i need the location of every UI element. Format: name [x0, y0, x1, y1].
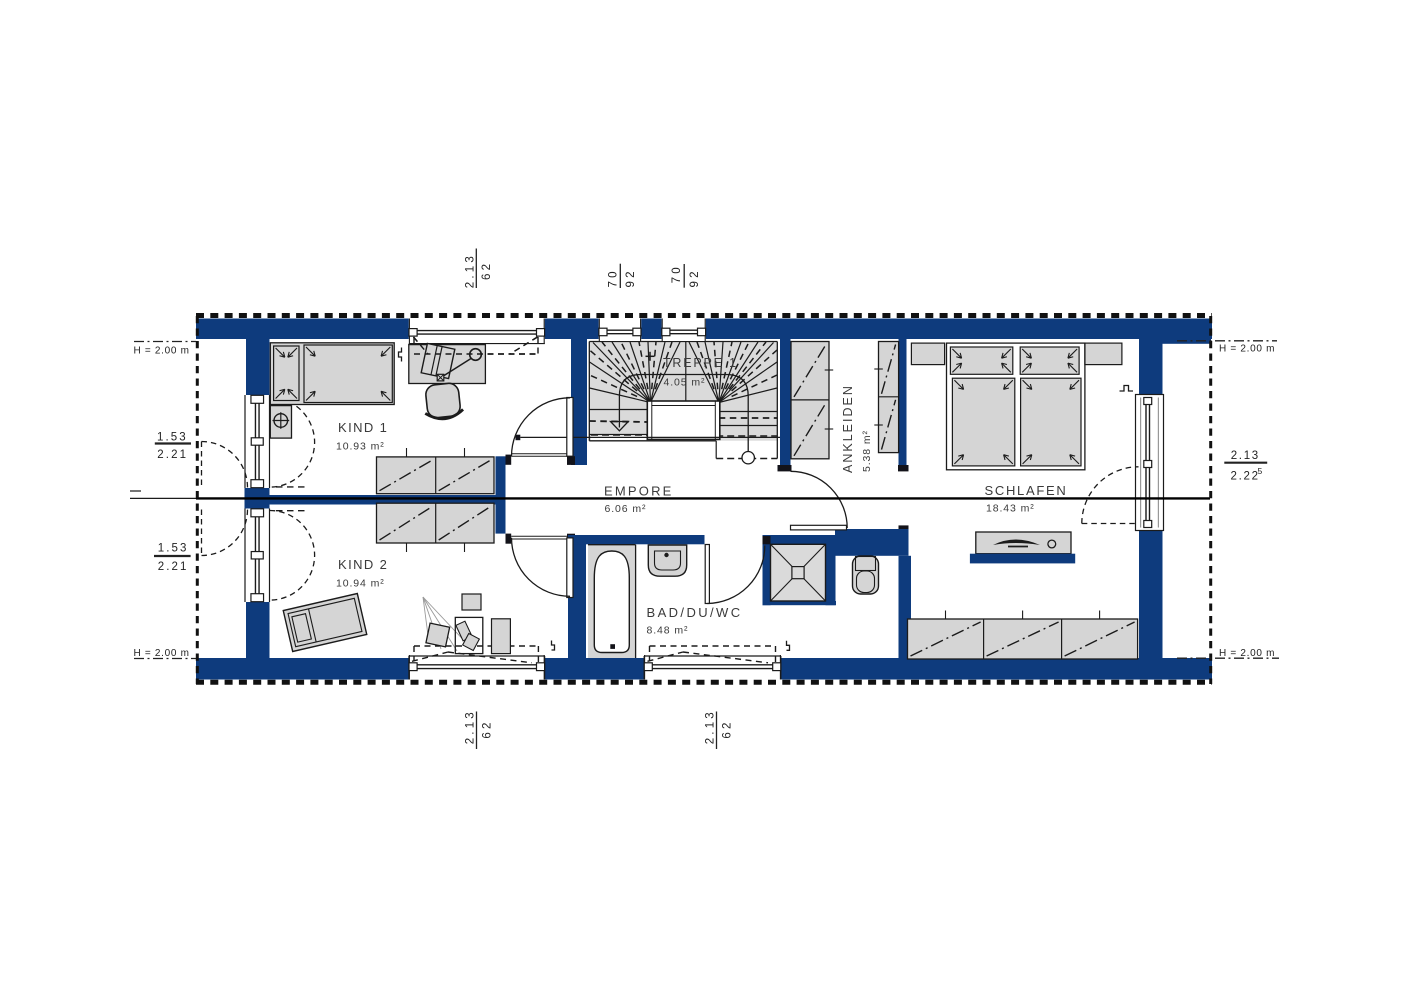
- svg-text:TREPPE 1: TREPPE 1: [663, 356, 738, 370]
- svg-text:KIND 1: KIND 1: [338, 420, 388, 435]
- svg-text:18.43 m²: 18.43 m²: [986, 503, 1035, 515]
- svg-text:EMPORE: EMPORE: [604, 484, 674, 499]
- svg-text:KIND 2: KIND 2: [338, 557, 388, 572]
- svg-text:2.13: 2.13: [465, 253, 477, 288]
- svg-text:62: 62: [481, 719, 493, 738]
- svg-text:1.53: 1.53: [158, 543, 189, 555]
- svg-text:1.53: 1.53: [157, 431, 188, 443]
- svg-text:62: 62: [481, 261, 493, 280]
- svg-text:8.48 m²: 8.48 m²: [647, 625, 689, 637]
- svg-text:4.05 m²: 4.05 m²: [664, 377, 706, 389]
- svg-text:2.13: 2.13: [1231, 450, 1260, 462]
- svg-text:H = 2.00 m: H = 2.00 m: [1219, 648, 1275, 659]
- svg-text:BAD/DU/WC: BAD/DU/WC: [647, 605, 743, 620]
- svg-text:H = 2.00 m: H = 2.00 m: [1219, 343, 1275, 354]
- svg-text:5.38 m²: 5.38 m²: [861, 430, 873, 472]
- svg-text:92: 92: [625, 268, 637, 287]
- svg-text:ANKLEIDEN: ANKLEIDEN: [841, 384, 855, 473]
- svg-text:70: 70: [671, 264, 683, 283]
- svg-text:2.21: 2.21: [158, 561, 189, 573]
- svg-text:2.13: 2.13: [465, 709, 477, 744]
- svg-text:2.22: 2.22: [1231, 470, 1260, 482]
- svg-text:2.21: 2.21: [157, 449, 188, 461]
- svg-text:70: 70: [607, 268, 619, 287]
- svg-text:SCHLAFEN: SCHLAFEN: [985, 483, 1068, 498]
- svg-text:62: 62: [721, 719, 733, 738]
- svg-text:H = 2.00 m: H = 2.00 m: [134, 648, 190, 659]
- svg-text:10.94 m²: 10.94 m²: [336, 578, 385, 590]
- svg-text:2.13: 2.13: [705, 709, 717, 744]
- svg-text:10.93 m²: 10.93 m²: [336, 441, 385, 453]
- svg-text:92: 92: [689, 268, 701, 287]
- svg-text:5: 5: [1258, 466, 1263, 476]
- svg-text:6.06 m²: 6.06 m²: [605, 503, 647, 515]
- svg-text:H = 2.00 m: H = 2.00 m: [134, 346, 190, 357]
